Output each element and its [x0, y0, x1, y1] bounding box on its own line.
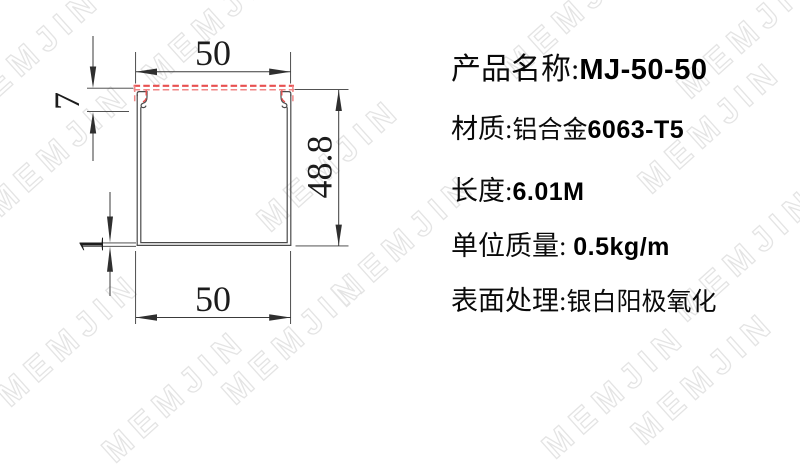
- spec-label: 产品名称:: [451, 53, 579, 86]
- spec-value-cn: 银白阳极氧化: [567, 289, 717, 316]
- dim-side-height: 48.8: [295, 90, 349, 246]
- watermark-text: MEMJIN: [624, 303, 784, 453]
- spec-value-en: 6063-T5: [588, 116, 685, 144]
- spec-label: 单位质量:: [451, 231, 573, 261]
- spec-label: 材质:: [451, 114, 513, 144]
- dim-lid-depth: 7: [47, 36, 134, 161]
- profile-drawing: 50 7 48.8 1: [0, 0, 430, 400]
- dim-wall-thickness-value: 1: [71, 236, 111, 254]
- profile-outline: [137, 92, 291, 246]
- dim-top-width-value: 50: [195, 33, 231, 73]
- spec-panel: 产品名称:MJ-50-50 材质:铝合金6063-T5 长度:6.01M 单位质…: [451, 44, 796, 318]
- spec-value-en: 0.5kg/m: [573, 233, 670, 261]
- product-spec-sheet: MEMJINMEMJINMEMJINMEMJINMEMJINMEMJINMEMJ…: [0, 0, 800, 400]
- spec-label: 表面处理:: [451, 286, 567, 316]
- dim-top-width: 50: [136, 33, 291, 84]
- spec-row-material: 材质:铝合金6063-T5: [451, 107, 796, 146]
- spec-row-product-name: 产品名称:MJ-50-50: [451, 44, 796, 88]
- dim-bottom-width: 50: [136, 251, 291, 324]
- spec-value-en: 6.01M: [513, 178, 585, 206]
- spec-row-unit-weight: 单位质量: 0.5kg/m: [451, 224, 796, 263]
- lid-dashed-outline: [134, 86, 294, 102]
- spec-row-length: 长度:6.01M: [451, 169, 796, 208]
- dim-lid-depth-value: 7: [47, 92, 87, 110]
- dim-bottom-width-value: 50: [195, 279, 231, 319]
- dim-wall-thickness: 1: [71, 192, 136, 296]
- spec-label: 长度:: [451, 176, 513, 206]
- spec-row-surface-treatment: 表面处理:银白阳极氧化: [451, 279, 796, 318]
- spec-value-cn: 铝合金: [513, 117, 588, 144]
- watermark-text: MEMJIN: [535, 317, 695, 467]
- dim-side-height-value: 48.8: [300, 136, 340, 199]
- spec-value-en: MJ-50-50: [579, 54, 707, 86]
